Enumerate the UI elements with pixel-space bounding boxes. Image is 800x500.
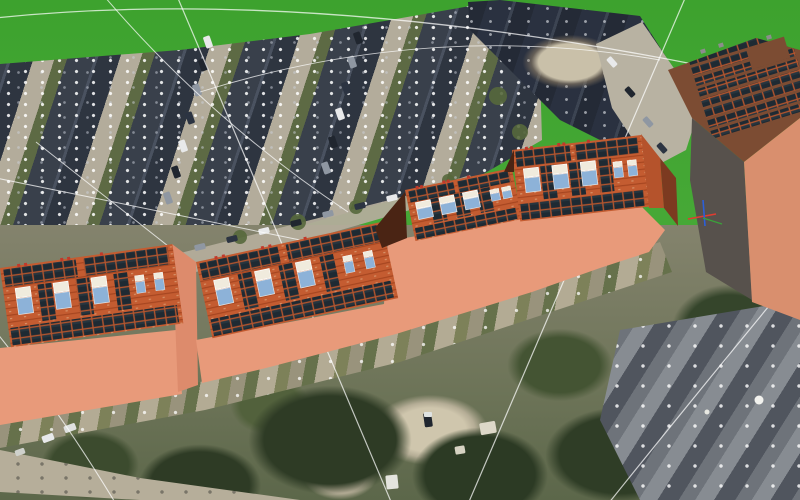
roof-segment[interactable] (512, 134, 650, 222)
roof-window[interactable] (53, 281, 71, 309)
roof-window-small[interactable] (501, 186, 512, 199)
roof-window[interactable] (91, 276, 109, 304)
scene-overlay (0, 0, 800, 500)
roof-window[interactable] (415, 200, 433, 220)
roof-window[interactable] (552, 164, 570, 189)
tower-building[interactable] (668, 27, 800, 320)
model-viewport[interactable] (0, 0, 800, 500)
roof-segment[interactable] (0, 243, 183, 348)
roof-window[interactable] (462, 190, 480, 210)
roof-window[interactable] (580, 161, 598, 186)
roof-window[interactable] (439, 195, 457, 215)
roof-window[interactable] (523, 167, 541, 192)
roof-window[interactable] (15, 286, 33, 314)
roof-window-small[interactable] (627, 160, 638, 177)
roof-window-small[interactable] (490, 188, 501, 201)
solar-roof-building[interactable] (0, 134, 678, 425)
roof-window-small[interactable] (613, 161, 624, 178)
